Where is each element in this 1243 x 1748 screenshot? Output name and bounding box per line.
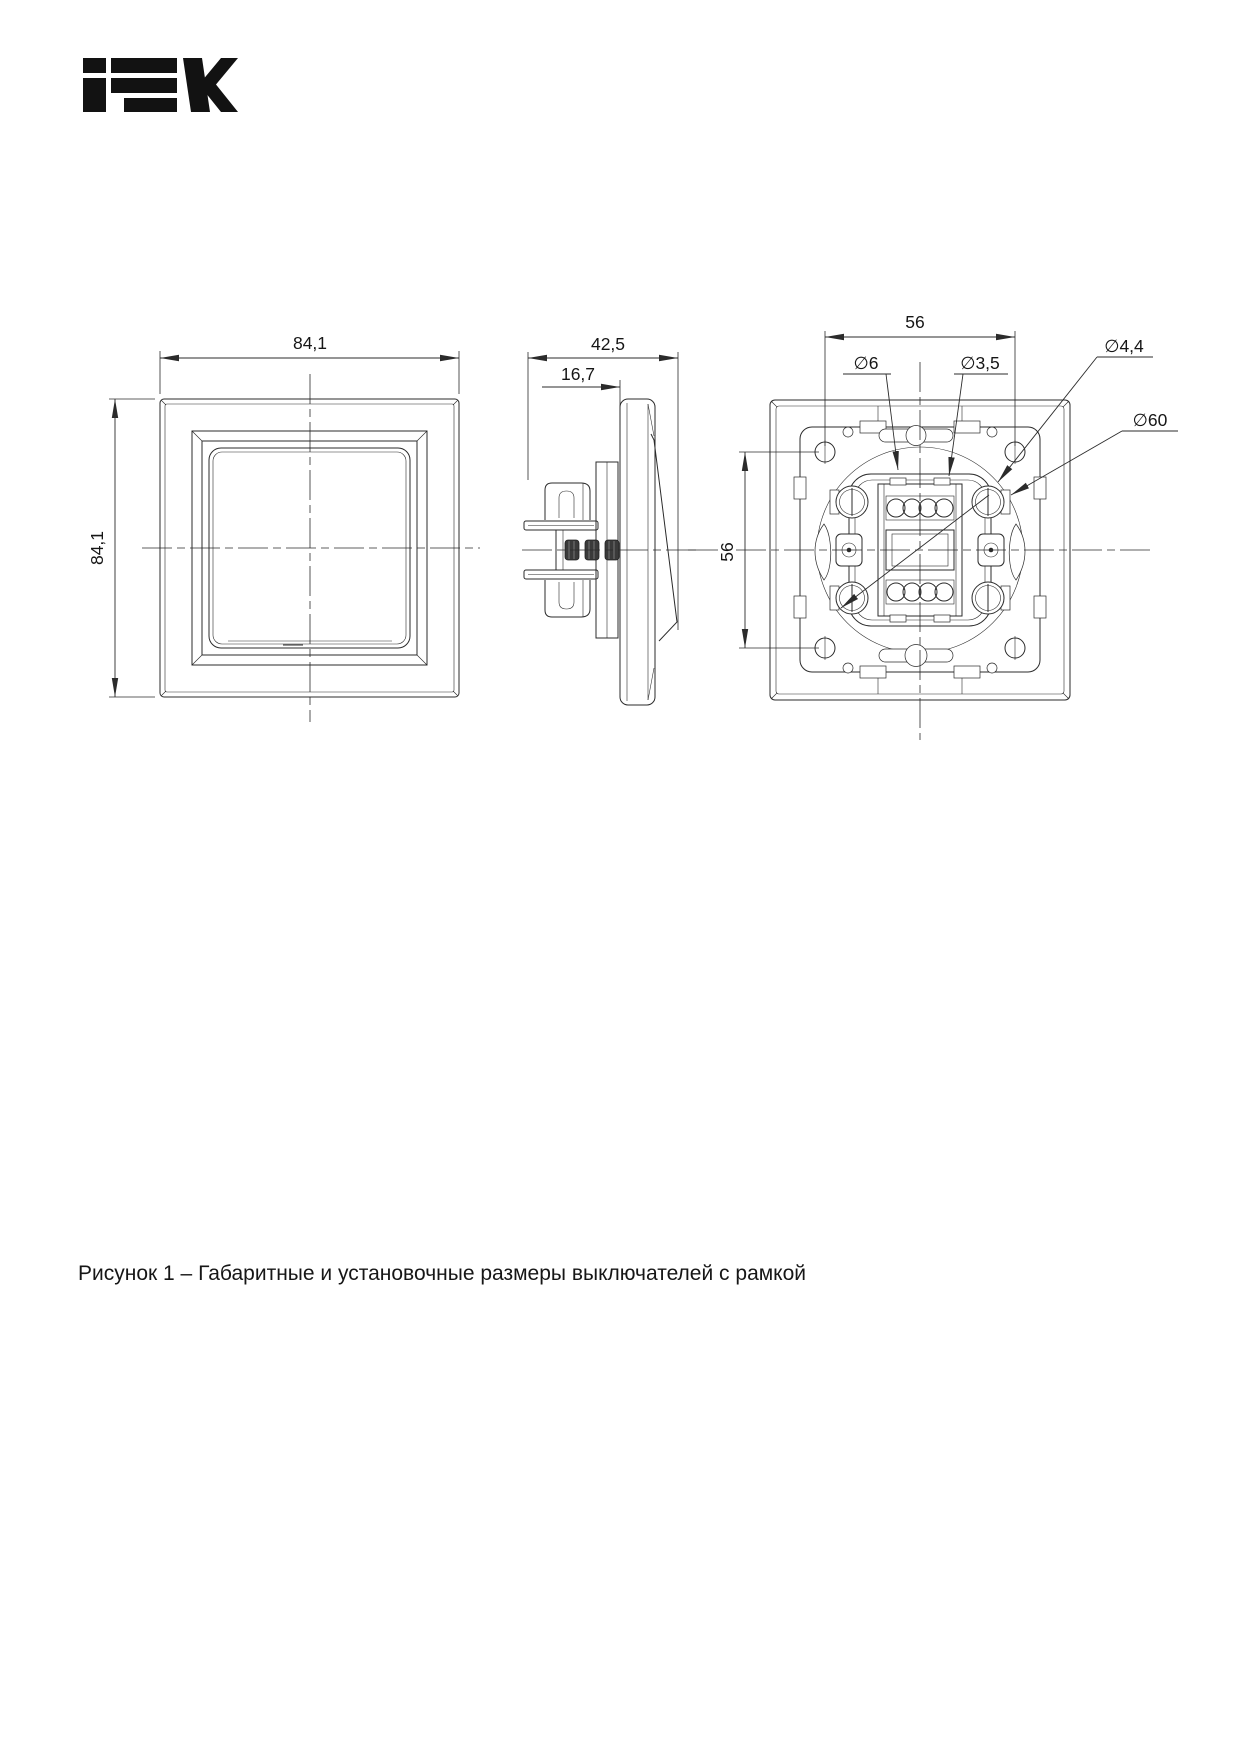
dim-side-total-depth: 42,5 bbox=[591, 334, 625, 354]
label-d6: ∅6 bbox=[854, 353, 879, 373]
front-view: 84,1 84,1 bbox=[87, 333, 480, 722]
side-view: 42,5 16,7 bbox=[522, 334, 698, 705]
dim-side-front-depth: 16,7 bbox=[561, 364, 595, 384]
drawing-sheet: IEK 84,1 bbox=[0, 0, 1243, 1748]
label-d4-4: ∅4,4 bbox=[1104, 336, 1144, 356]
figure-caption: Рисунок 1 – Габаритные и установочные ра… bbox=[78, 1262, 806, 1286]
dim-front-height: 84,1 bbox=[87, 531, 107, 565]
label-d3-5: ∅3,5 bbox=[960, 353, 1000, 373]
dim-back-spacing-horizontal: 56 bbox=[905, 312, 924, 332]
dim-back-spacing-vertical: 56 bbox=[717, 542, 737, 561]
label-d60: ∅60 bbox=[1133, 410, 1168, 430]
back-view: 56 56 ∅6 ∅3,5 ∅4,4 ∅60 bbox=[688, 312, 1178, 740]
iek-logo: IEK bbox=[83, 58, 238, 112]
dim-front-width: 84,1 bbox=[293, 333, 327, 353]
document-page: { "logo": { "text": "IEK" }, "figure": {… bbox=[0, 0, 1243, 1748]
